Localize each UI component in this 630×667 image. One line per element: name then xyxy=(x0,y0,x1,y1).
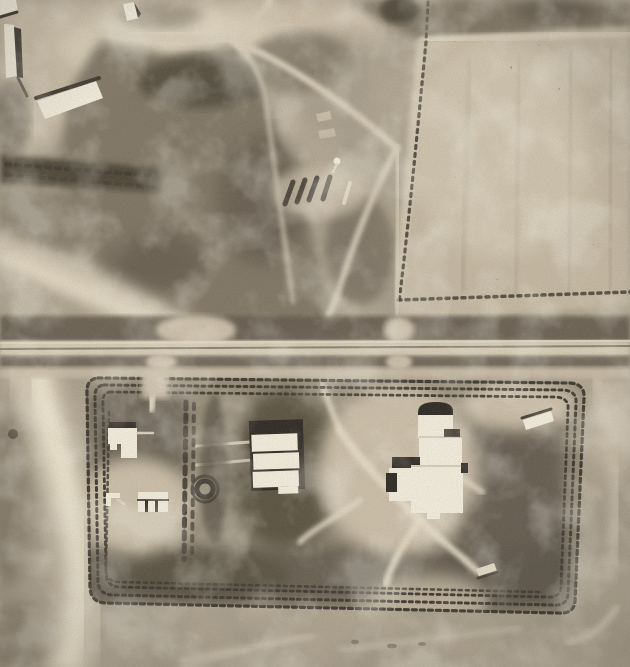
photo-texture xyxy=(0,0,630,667)
aerial-photograph xyxy=(0,0,630,667)
vignette xyxy=(0,0,630,667)
